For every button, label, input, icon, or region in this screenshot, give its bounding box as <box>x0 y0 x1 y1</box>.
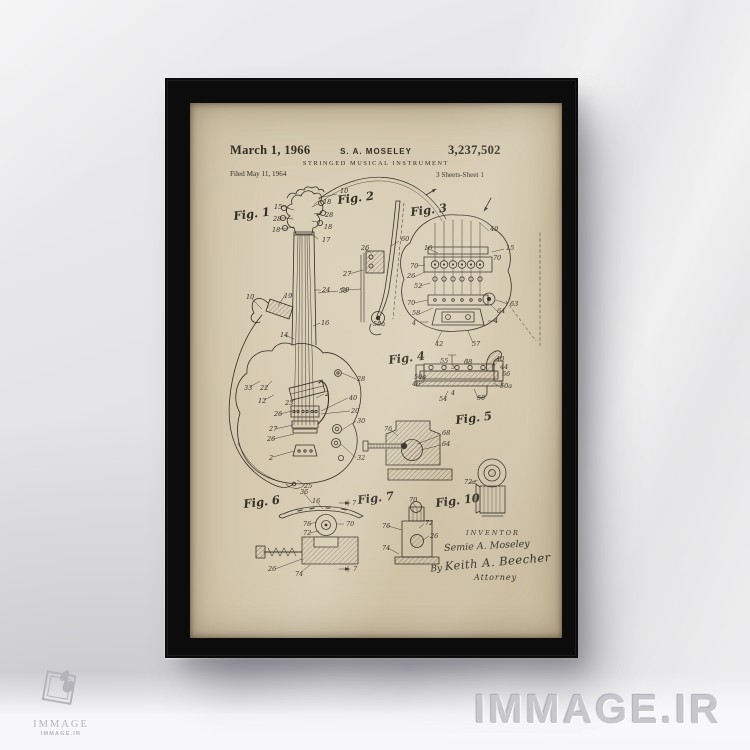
attorney-label: Attorney <box>474 573 558 582</box>
ref-numeral: 20 <box>350 407 359 415</box>
ref-numeral: 16 <box>321 319 329 327</box>
ref-numeral: 46 <box>411 380 420 388</box>
ref-numeral: 17 <box>322 236 331 244</box>
ref-numeral: 63 <box>510 300 518 308</box>
ref-numeral: 70 <box>493 254 501 262</box>
ref-numeral: 52 <box>414 282 422 290</box>
inventor-block: INVENTOR Semie A. Moseley By Keith A. Be… <box>428 529 558 582</box>
by-prefix: By <box>430 564 443 575</box>
fig5-block-section <box>363 421 452 480</box>
figure-label: Fig. 1 <box>232 205 271 223</box>
immage-logo: IMMAGE IMMAGE.IR <box>18 662 104 737</box>
ref-numeral: 68 <box>442 429 450 437</box>
ref-numeral: 72 <box>303 529 311 537</box>
ref-numeral: 18 <box>272 226 280 234</box>
ref-numeral: 2 <box>268 454 273 462</box>
ref-numeral: 18 <box>324 223 332 231</box>
ref-numeral: 4 <box>411 319 416 327</box>
ref-numeral: 66 <box>502 370 510 378</box>
figure-label: Fig. 3 <box>409 201 448 219</box>
ref-numeral: 19 <box>284 292 292 300</box>
patent-paper: March 1, 1966 S. A. MOSELEY 3,237,502 ST… <box>190 103 562 638</box>
ref-numeral: 32 <box>357 454 365 462</box>
ref-numeral: 16 <box>424 244 432 252</box>
figure-label: Fig. 4 <box>387 349 426 367</box>
figure-label: Fig. 10 <box>434 491 481 510</box>
fig1-guitar <box>229 187 361 488</box>
ref-numeral: 57 <box>472 340 481 348</box>
ref-numeral: 42 <box>434 340 443 348</box>
ref-numeral: 58 <box>412 309 420 317</box>
ref-numeral: 4 <box>450 389 455 397</box>
ref-numeral: 36 <box>300 488 308 496</box>
flame-diamond-icon <box>35 662 87 714</box>
figure-label: Fig. 5 <box>454 409 493 427</box>
ref-numeral: 16 <box>312 497 320 505</box>
ref-numeral: 70 <box>410 262 418 270</box>
figure-label: Fig. 7 <box>356 489 395 507</box>
ref-numeral: 4 <box>493 317 498 325</box>
ref-numeral: 40 <box>348 394 357 402</box>
ref-numeral: 60 <box>401 235 409 243</box>
ref-numeral: 10 <box>246 293 254 301</box>
ref-numeral: 50a <box>500 382 512 390</box>
ref-numeral: 22 <box>259 384 268 392</box>
ref-numeral: 76 <box>382 522 390 530</box>
ref-numeral: 7 <box>352 499 357 507</box>
ref-numeral: 28 <box>356 375 365 383</box>
ref-numeral: 12 <box>258 397 266 405</box>
fig10-roller <box>476 459 506 516</box>
figure-labels: Fig. 1Fig. 2Fig. 3Fig. 4Fig. 5Fig. 6Fig.… <box>232 189 493 511</box>
ref-numeral: 15 <box>506 244 514 252</box>
ref-numeral: 2 <box>324 390 329 398</box>
ref-numeral: 26 <box>360 244 369 252</box>
ref-numeral: 68 <box>464 358 472 366</box>
ref-numeral: 70 <box>407 299 415 307</box>
ref-numeral: 64 <box>497 307 505 315</box>
fig4-section <box>416 351 503 398</box>
logo-title: IMMAGE <box>18 719 104 730</box>
ref-numeral: 74 <box>382 544 390 552</box>
ref-numeral: 72 <box>425 519 433 527</box>
ref-numeral: 15 <box>274 203 282 211</box>
ref-numeral: 26 <box>406 272 415 280</box>
ref-numeral: 24 <box>321 286 330 294</box>
ref-numeral: 64 <box>442 440 450 448</box>
ref-numeral: 18 <box>323 198 331 206</box>
ref-numeral: 70 <box>409 496 417 504</box>
ref-numeral: 76 <box>384 425 392 433</box>
immage-watermark: IMMAGE.IR <box>474 686 722 733</box>
logo-subtitle: IMMAGE.IR <box>18 731 104 737</box>
ref-numeral: 27 <box>268 425 278 433</box>
ref-numeral: 26 <box>273 410 282 418</box>
ref-numeral: 23 <box>284 399 293 407</box>
ref-numeral: 28 <box>324 211 333 219</box>
ref-numeral: 30 <box>357 417 365 425</box>
ref-numeral: 5 <box>451 363 455 371</box>
ref-numeral: 50 <box>341 286 349 294</box>
ref-numeral: 76 <box>303 520 311 528</box>
figure-label: Fig. 6 <box>242 493 281 511</box>
fig2-lever <box>361 201 404 335</box>
ref-numeral: 50 <box>477 394 485 402</box>
ref-numeral: 72a <box>464 478 476 486</box>
ref-numeral: 28 <box>272 215 281 223</box>
ref-numeral: 27 <box>342 270 352 278</box>
attorney-signature: Keith A. Beecher <box>444 550 551 573</box>
inventor-heading: INVENTOR <box>466 529 558 537</box>
ref-numeral: 54 <box>439 395 447 403</box>
ref-numeral: 70 <box>346 520 354 528</box>
ref-numeral: 33 <box>244 384 252 392</box>
poster-frame: March 1, 1966 S. A. MOSELEY 3,237,502 ST… <box>165 78 578 658</box>
ref-numeral: 50a <box>373 320 385 328</box>
ref-numeral: 7 <box>353 565 358 573</box>
ref-numeral: 74 <box>295 570 303 578</box>
product-photo-scene: March 1, 1966 S. A. MOSELEY 3,237,502 ST… <box>0 0 750 750</box>
ref-numeral: 26 <box>266 435 275 443</box>
ref-numeral: 55 <box>440 357 448 365</box>
ref-numeral: 14 <box>280 331 288 339</box>
ref-numeral: 49 <box>489 225 498 233</box>
ref-numeral: 26 <box>267 565 276 573</box>
ref-numeral: 40 <box>495 355 504 363</box>
